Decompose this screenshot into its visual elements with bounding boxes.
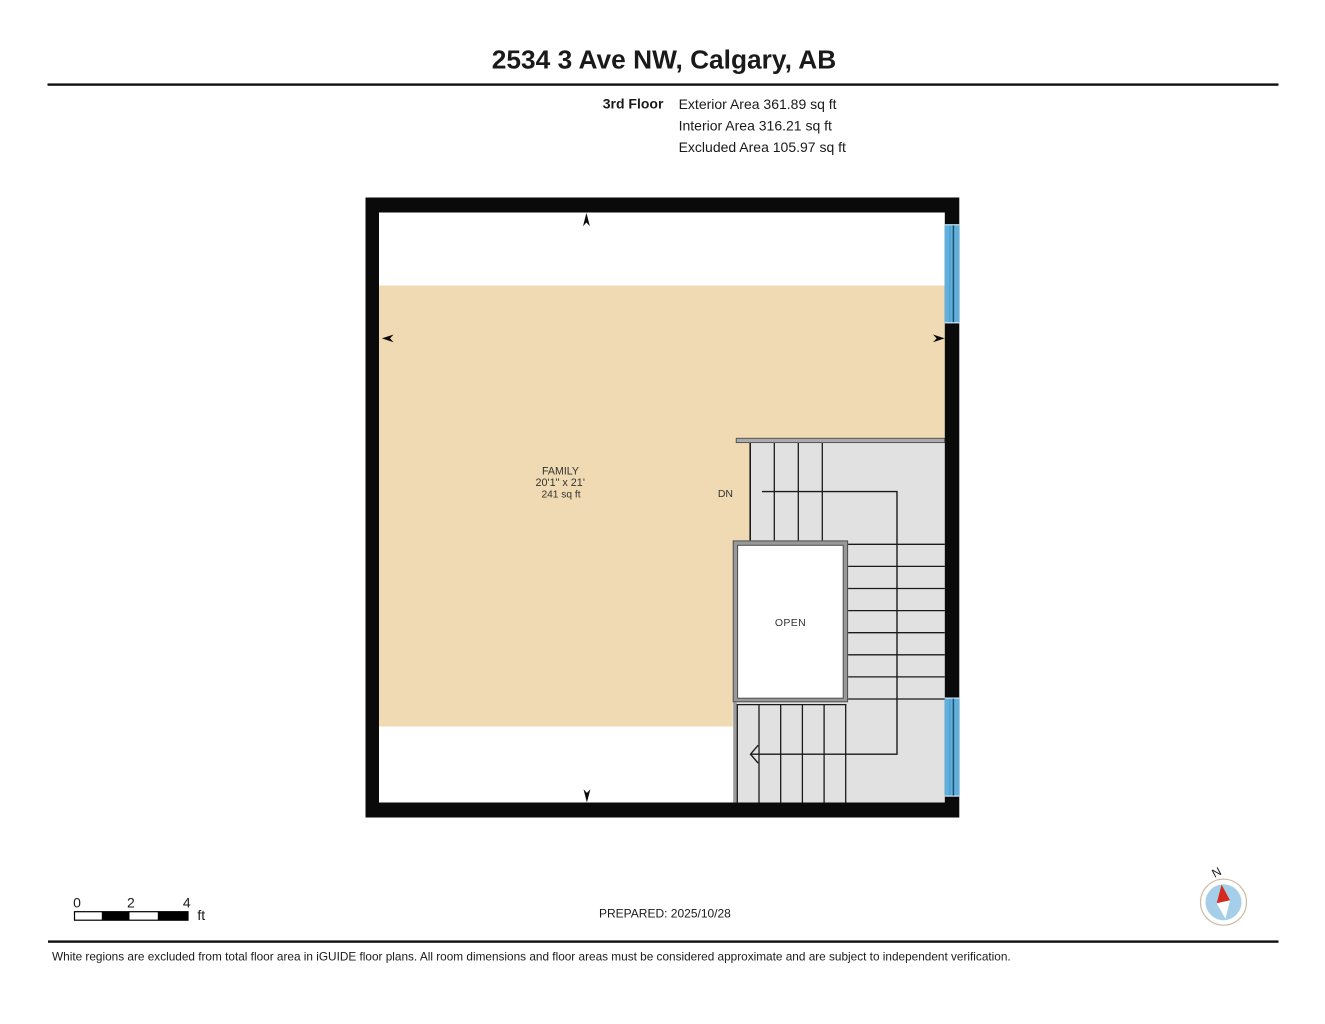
svg-text:4: 4 <box>183 894 191 910</box>
svg-text:3rd Floor: 3rd Floor <box>603 96 664 112</box>
svg-text:DN: DN <box>718 488 733 500</box>
svg-text:2: 2 <box>127 894 135 910</box>
svg-text:Exterior Area 361.89 sq ft: Exterior Area 361.89 sq ft <box>679 96 837 112</box>
svg-text:241 sq ft: 241 sq ft <box>541 490 580 501</box>
svg-text:0: 0 <box>73 894 81 910</box>
svg-text:PREPARED: 2025/10/28: PREPARED: 2025/10/28 <box>599 906 731 920</box>
svg-text:2534 3 Ave NW, Calgary, AB: 2534 3 Ave NW, Calgary, AB <box>492 45 836 75</box>
svg-text:Interior Area 316.21 sq ft: Interior Area 316.21 sq ft <box>679 118 832 134</box>
svg-text:White regions are excluded fro: White regions are excluded from total fl… <box>52 950 1011 964</box>
svg-text:Excluded Area 105.97 sq ft: Excluded Area 105.97 sq ft <box>679 139 846 155</box>
svg-text:ft: ft <box>197 907 205 923</box>
svg-text:20'1" x 21': 20'1" x 21' <box>536 477 585 489</box>
svg-text:OPEN: OPEN <box>775 617 806 629</box>
svg-text:FAMILY: FAMILY <box>542 466 579 478</box>
